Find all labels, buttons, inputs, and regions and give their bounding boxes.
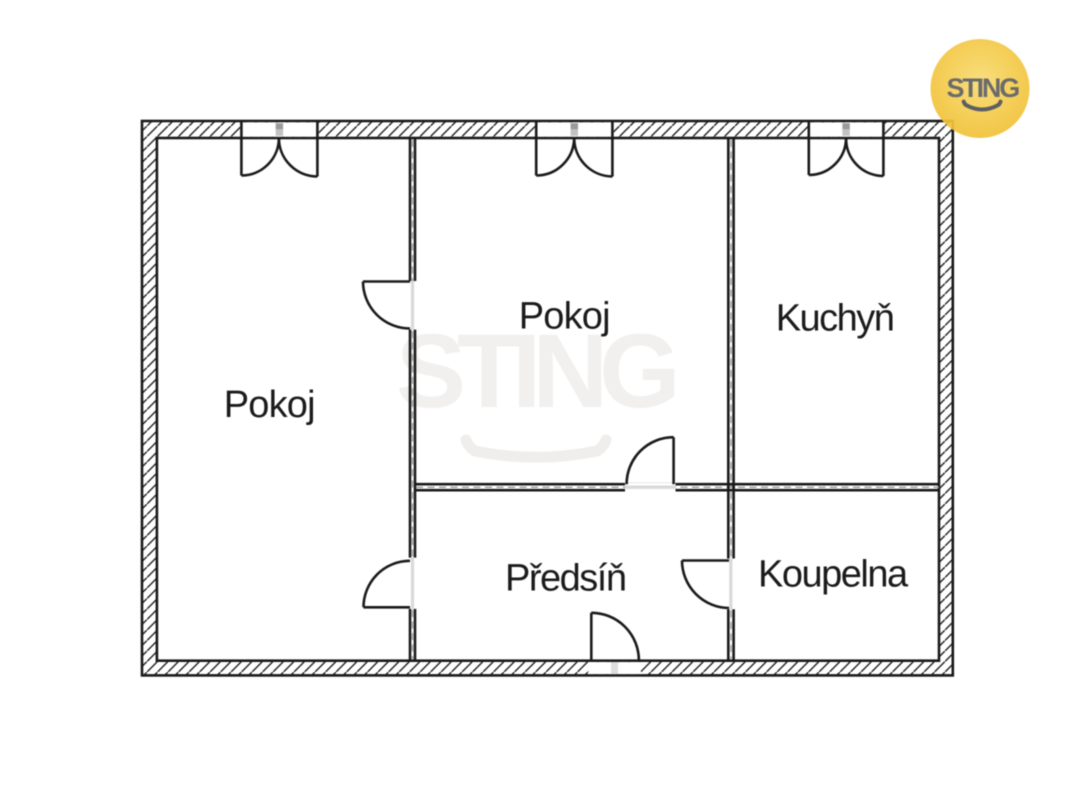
svg-text:Koupelna: Koupelna [758,554,909,596]
svg-text:STING: STING [947,73,1020,103]
svg-text:Pokoj: Pokoj [519,296,610,338]
svg-text:Pokoj: Pokoj [224,384,315,426]
svg-text:Kuchyň: Kuchyň [776,297,894,339]
svg-text:Předsíň: Předsíň [505,557,625,599]
